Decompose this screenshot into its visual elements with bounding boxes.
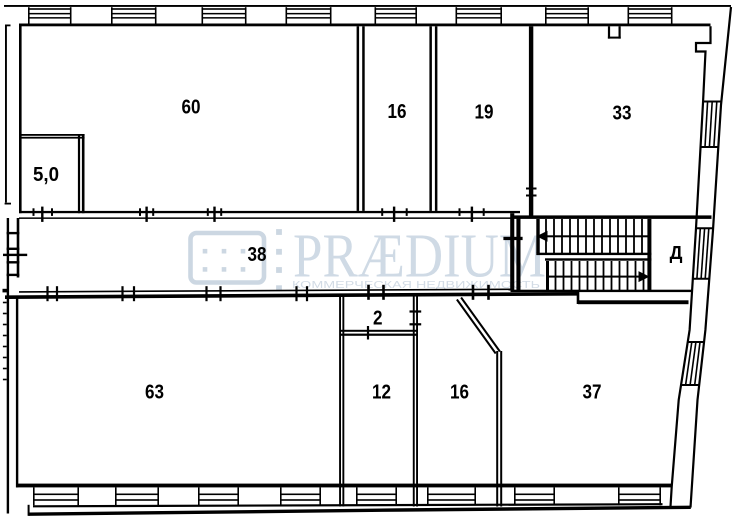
svg-text:19: 19 (475, 102, 494, 124)
svg-text:60: 60 (182, 97, 201, 119)
svg-text:37: 37 (583, 381, 602, 403)
svg-text:16: 16 (388, 101, 407, 123)
svg-text:Д: Д (670, 243, 683, 263)
svg-text:5,0: 5,0 (33, 164, 59, 186)
svg-text:63: 63 (145, 381, 164, 403)
svg-text:38: 38 (248, 244, 267, 266)
svg-text:16: 16 (450, 381, 469, 403)
svg-text:12: 12 (372, 381, 391, 403)
svg-text:2: 2 (373, 307, 383, 329)
svg-text:33: 33 (613, 102, 632, 124)
